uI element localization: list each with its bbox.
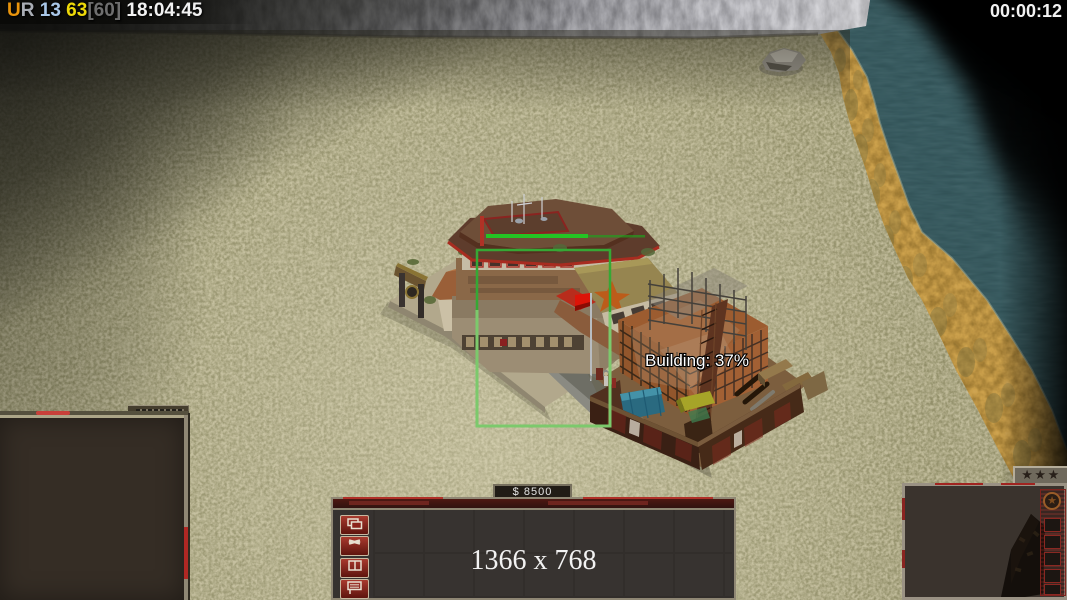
- svg-text:Building: 37%: Building: 37%: [645, 351, 749, 370]
